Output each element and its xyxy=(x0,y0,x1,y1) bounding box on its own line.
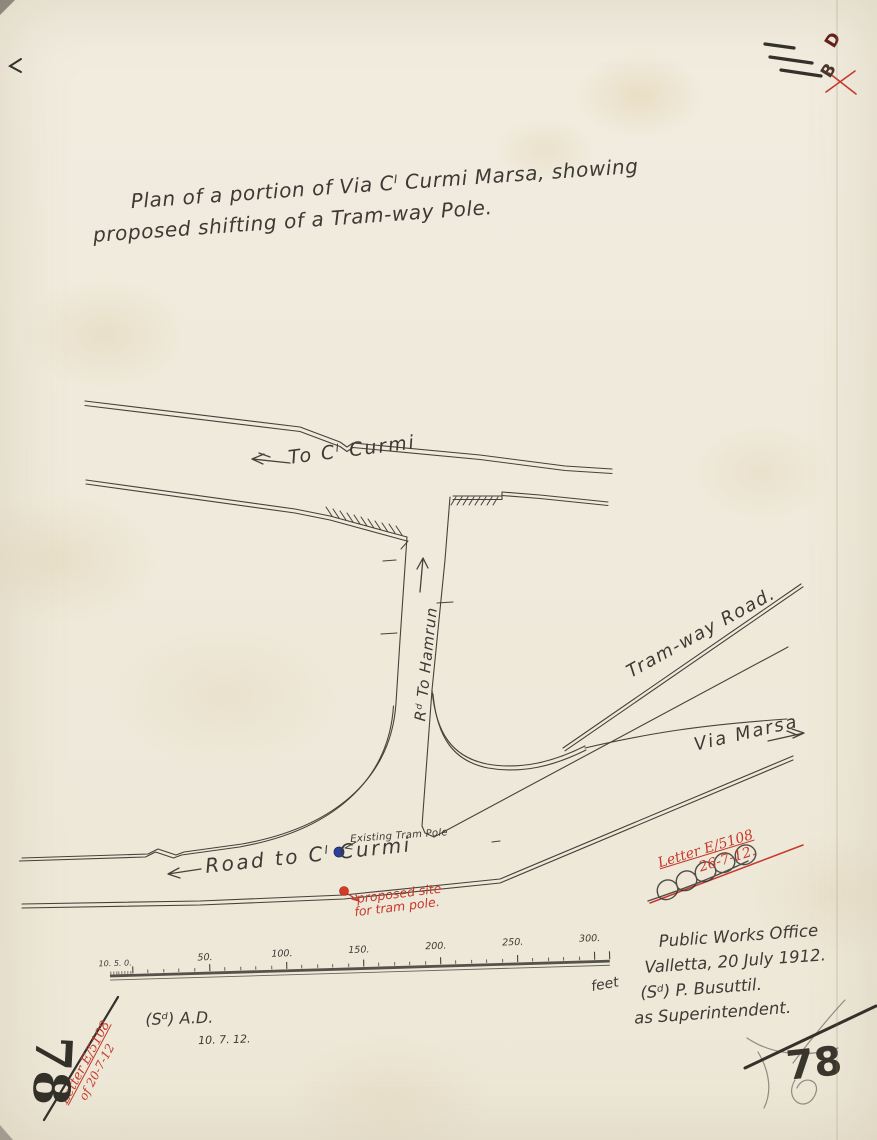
scale-bar: 10. 5. 0. 50. 100. 150. 200. 250. 300. xyxy=(98,933,610,981)
existing-pole-dash xyxy=(492,841,500,842)
scale-label-300: 300. xyxy=(579,933,600,945)
approval-initials: (Sᵈ) A.D. xyxy=(145,1006,250,1029)
top-road-lower-edge xyxy=(86,480,407,537)
scale-subdivision-ticks xyxy=(111,971,131,975)
junction-curve-west xyxy=(22,703,396,858)
scale-label-100: 100. xyxy=(271,948,292,960)
scale-unit-label: feet xyxy=(590,974,621,995)
plan-document: 10. 5. 0. 50. 100. 150. 200. 250. 300. f… xyxy=(0,0,877,1140)
scale-left-labels: 10. 5. 0. xyxy=(98,958,131,968)
corner-check-mark xyxy=(10,59,21,72)
scale-label-250: 250. xyxy=(502,937,523,949)
page-number-left: 78 xyxy=(24,1035,83,1102)
proposed-pole-marker xyxy=(340,887,349,896)
approval-date: 10. 7. 12. xyxy=(198,1032,251,1047)
gate-ticks-left xyxy=(381,560,397,634)
ink-arrows xyxy=(168,453,804,878)
tally-strokes xyxy=(765,44,821,76)
hamrun-road-left-edge xyxy=(396,537,407,703)
arrow-road-to-curmi xyxy=(168,868,201,878)
arrow-to-curmi xyxy=(252,453,290,464)
top-road-right-stub xyxy=(453,492,608,502)
junction-curve-east xyxy=(432,690,585,766)
scale-label-200: 200. xyxy=(425,941,446,953)
approval-note: (Sᵈ) A.D. 10. 7. 12. xyxy=(145,1006,251,1049)
scan-corner-marks xyxy=(0,0,15,1140)
scale-bar-body xyxy=(110,960,610,978)
hatch-marks-east xyxy=(451,497,498,505)
scale-label-50: 50. xyxy=(197,952,212,963)
paper-fold-line xyxy=(836,0,838,1140)
signature-block: Public Works Office Valletta, 20 July 19… xyxy=(628,917,830,1030)
scale-label-150: 150. xyxy=(348,944,369,956)
hatch-marks-west xyxy=(326,507,408,549)
